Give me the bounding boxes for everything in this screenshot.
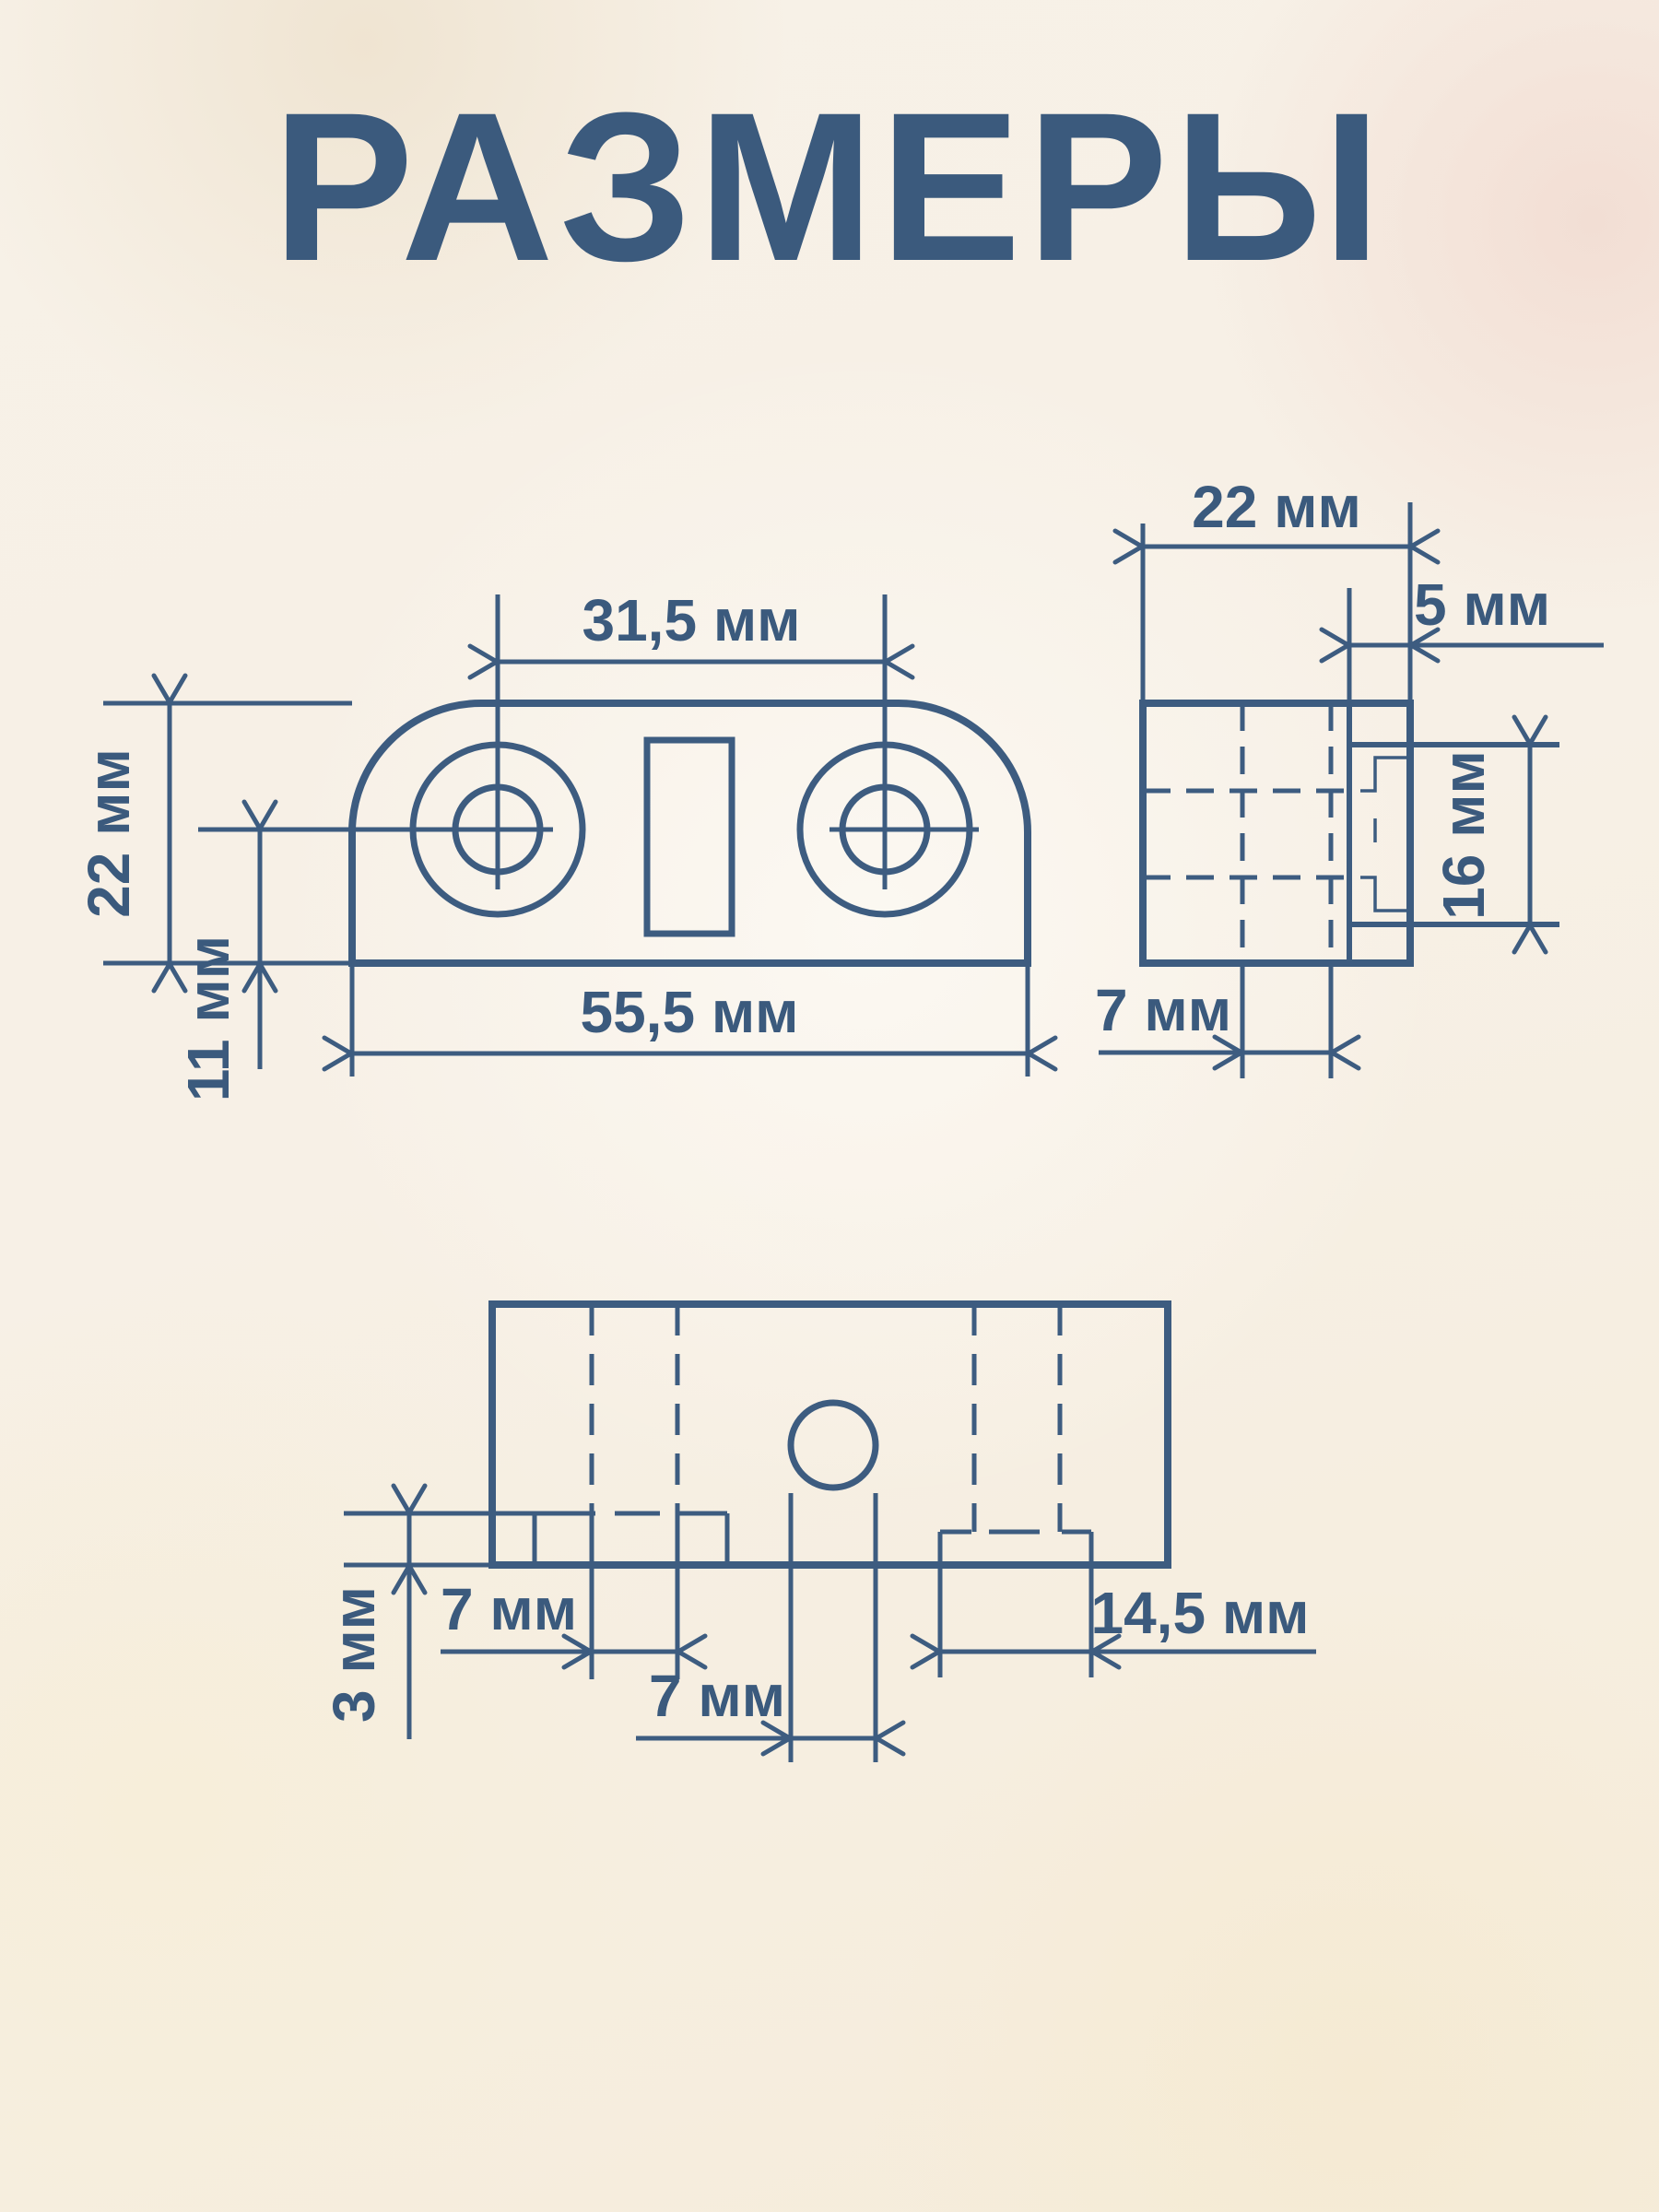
bottom-notch-width-label: 14,5 мм [1090, 1580, 1309, 1646]
front-width-label: 55,5 мм [580, 979, 798, 1045]
front-height-label: 22 мм [76, 748, 142, 918]
bottom-step-depth-label: 3 мм [321, 1586, 387, 1723]
side-latch-profile [1360, 758, 1410, 911]
side-hidden-lines [1143, 703, 1349, 963]
front-center-lines [103, 594, 1028, 1077]
page-title: РАЗМЕРЫ [273, 68, 1387, 305]
front-hole-offset-label: 11 мм [175, 935, 241, 1101]
side-depth-label: 22 мм [1192, 474, 1361, 540]
bottom-left-slot-label: 7 мм [441, 1576, 577, 1642]
bottom-hole [791, 1403, 876, 1488]
page: РАЗМЕРЫ [0, 0, 1659, 2212]
bottom-view [344, 1304, 1316, 1762]
front-center-slot [647, 740, 732, 934]
side-groove-height-label: 16 мм [1430, 750, 1497, 920]
side-groove-offset-label: 5 мм [1414, 571, 1550, 638]
bottom-hole-diameter-label: 7 мм [649, 1663, 785, 1729]
bottom-hidden-lines [592, 1304, 1060, 1532]
front-hole-spacing-label: 31,5 мм [582, 587, 800, 653]
technical-drawing: РАЗМЕРЫ [0, 0, 1659, 2212]
bottom-right-notch [940, 1532, 1091, 1565]
side-web-label: 7 мм [1095, 977, 1231, 1043]
front-view [103, 594, 1028, 1077]
